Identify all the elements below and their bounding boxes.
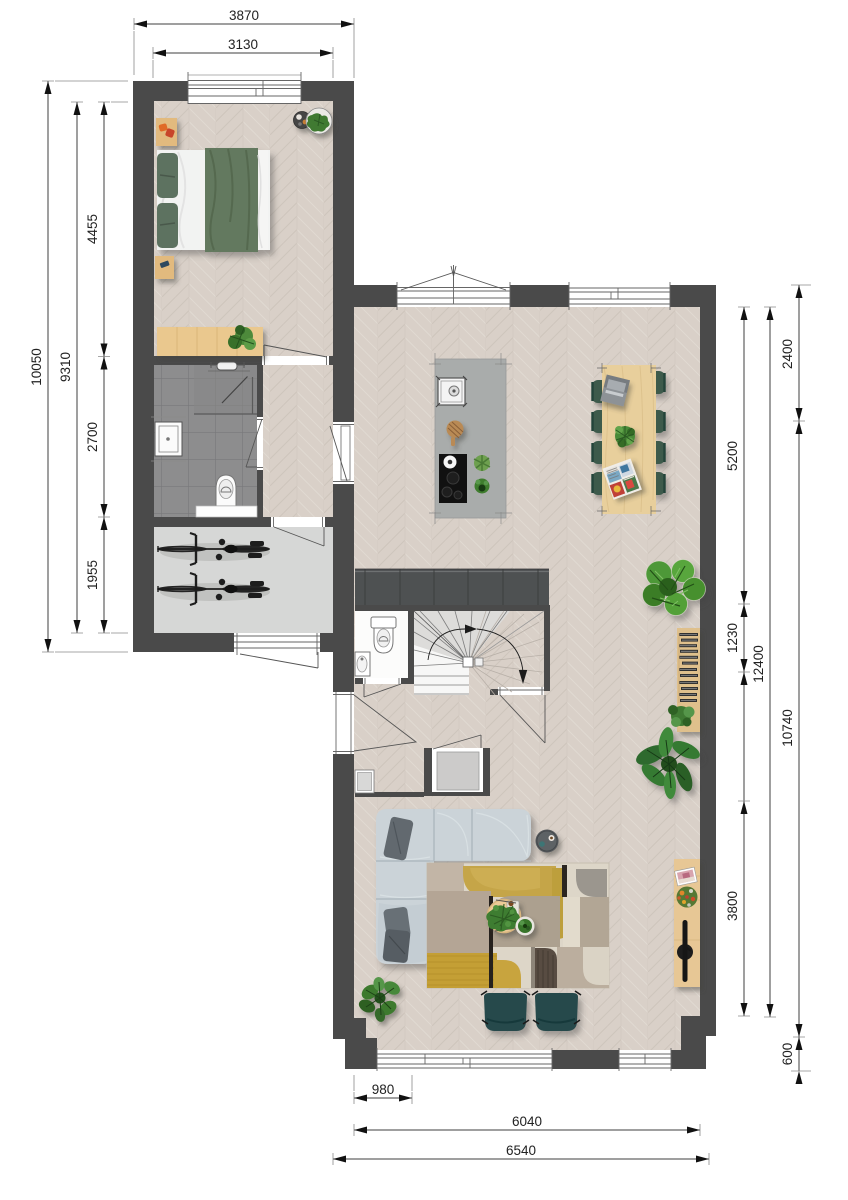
svg-text:12400: 12400 bbox=[751, 645, 766, 683]
svg-text:1230: 1230 bbox=[725, 623, 740, 653]
svg-text:2700: 2700 bbox=[85, 422, 100, 452]
svg-text:3870: 3870 bbox=[229, 8, 259, 23]
svg-text:980: 980 bbox=[372, 1082, 395, 1097]
svg-text:2400: 2400 bbox=[780, 339, 795, 369]
svg-text:600: 600 bbox=[780, 1043, 795, 1066]
svg-text:4455: 4455 bbox=[85, 214, 100, 244]
svg-text:1955: 1955 bbox=[85, 560, 100, 590]
svg-text:10740: 10740 bbox=[780, 709, 795, 747]
svg-text:10050: 10050 bbox=[29, 348, 44, 386]
svg-text:9310: 9310 bbox=[58, 352, 73, 382]
svg-text:5200: 5200 bbox=[725, 441, 740, 471]
svg-text:6040: 6040 bbox=[512, 1114, 542, 1129]
svg-text:3800: 3800 bbox=[725, 891, 740, 921]
svg-text:6540: 6540 bbox=[506, 1143, 536, 1158]
svg-text:3130: 3130 bbox=[228, 37, 258, 52]
